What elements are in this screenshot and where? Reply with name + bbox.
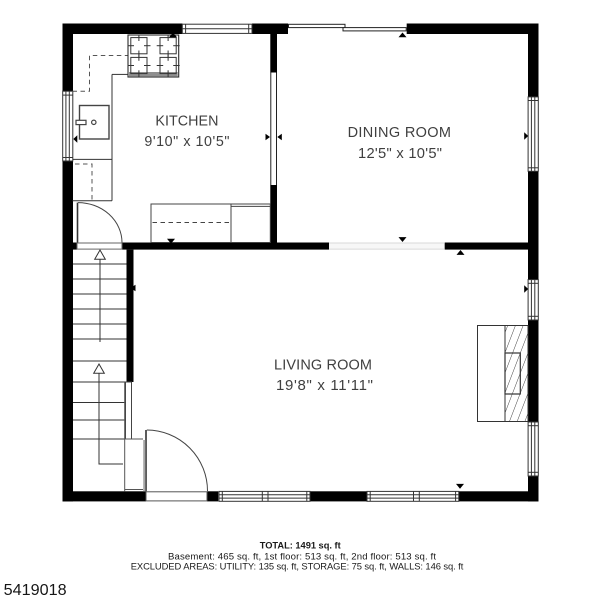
svg-text:KITCHEN: KITCHEN: [155, 114, 218, 130]
svg-text:EXCLUDED AREAS: UTILITY: 135 s: EXCLUDED AREAS: UTILITY: 135 sq. ft, STO…: [131, 561, 464, 572]
svg-text:TOTAL: 1491 sq. ft: TOTAL: 1491 sq. ft: [260, 540, 341, 550]
svg-text:9'10" x 10'5": 9'10" x 10'5": [144, 134, 229, 150]
svg-text:19'8" x 11'11": 19'8" x 11'11": [276, 377, 373, 394]
svg-text:5419018: 5419018: [4, 582, 67, 599]
svg-text:DINING ROOM: DINING ROOM: [348, 125, 451, 141]
svg-text:LIVING ROOM: LIVING ROOM: [274, 358, 372, 374]
svg-text:12'5" x 10'5": 12'5" x 10'5": [358, 146, 442, 162]
